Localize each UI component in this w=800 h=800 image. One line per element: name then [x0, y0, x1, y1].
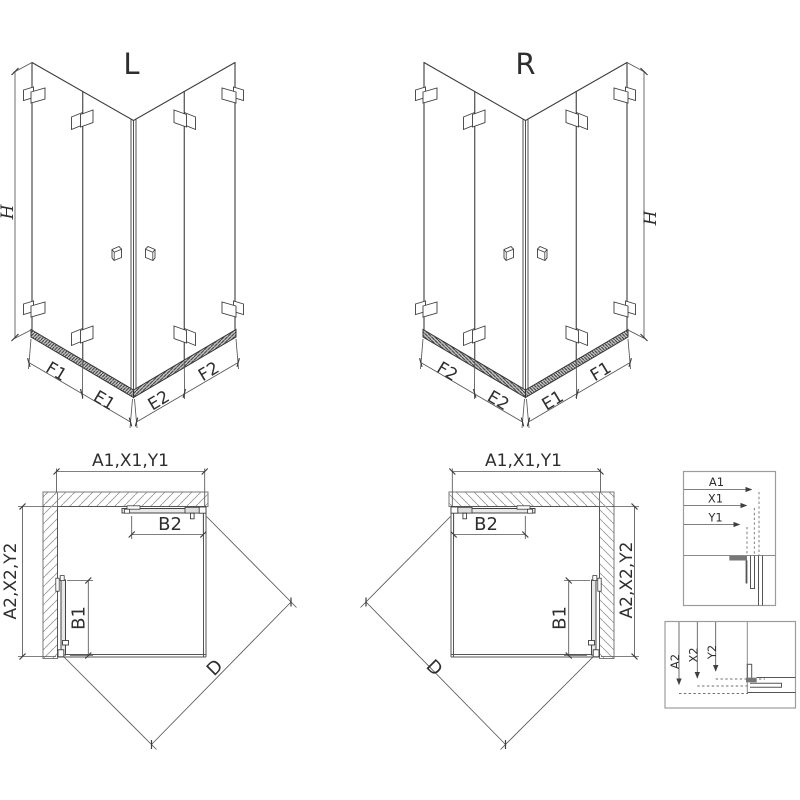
plan-view-left: A1,X1,Y1 A2,X2,Y2 B2 B1 D: [1, 451, 297, 750]
plan-left-width-dim-label: A1,X1,Y1: [92, 451, 169, 471]
plan-right-b2-dim-label: B2: [474, 514, 498, 535]
detail-x1-label: X1: [708, 492, 723, 506]
plan-left-b1-dim-label: B1: [69, 606, 90, 630]
plan-left-depth-dim-label: A2,X2,Y2: [1, 543, 21, 620]
left-e2-dim-label: E2: [145, 387, 174, 415]
left-e1-dim-label: E1: [90, 387, 119, 415]
wall-profile-flange: [746, 678, 757, 683]
right-e2-dim-label: E2: [484, 387, 513, 415]
right-height-dim-label: H: [641, 209, 661, 226]
left-f2-dim-label: F2: [195, 358, 223, 386]
plan-view-right: A1,X1,Y1 A2,X2,Y2 B2 B1 D: [361, 451, 640, 750]
detail-a2-label: A2: [668, 654, 682, 669]
detail-y1-label: Y1: [707, 511, 722, 525]
detail-box-top: A1 X1 Y1: [684, 472, 776, 606]
plan-left-b2-dim-label: B2: [158, 514, 182, 535]
right-e1-dim-label: E1: [539, 387, 568, 415]
plan-right-width-dim-label: A1,X1,Y1: [485, 451, 562, 471]
plan-right-depth-dim-label: A2,X2,Y2: [617, 542, 637, 619]
left-view-title: L: [123, 47, 139, 81]
left-f1-dim-label: F1: [42, 358, 70, 386]
plan-left-d-dim-label: D: [203, 656, 228, 681]
detail-a1-label: A1: [709, 475, 724, 489]
detail-y2-label: Y2: [705, 645, 719, 660]
plan-right-d-dim-label: D: [422, 656, 447, 681]
technical-drawing-page: L H F1 E1 E2 F2 R H F2 E2 E1 F1 A1,X1,Y1…: [0, 0, 800, 800]
right-f1-dim-label: F1: [587, 358, 615, 386]
right-f2-dim-label: F2: [433, 358, 461, 386]
plan-right-b1-dim-label: B1: [550, 606, 571, 630]
right-3d-view: R H F2 E2 E1 F1: [416, 47, 662, 428]
left-height-dim-label: H: [0, 203, 18, 220]
detail-x2-label: X2: [687, 647, 701, 662]
shower-enclosure-diagram: L H F1 E1 E2 F2 R H F2 E2 E1 F1 A1,X1,Y1…: [0, 0, 800, 800]
detail-box-bottom: A2 X2 Y2: [665, 622, 796, 709]
right-view-title: R: [515, 47, 535, 81]
wall-profile-flange: [729, 556, 747, 561]
left-3d-view: L H F1 E1 E2 F2: [0, 47, 244, 428]
